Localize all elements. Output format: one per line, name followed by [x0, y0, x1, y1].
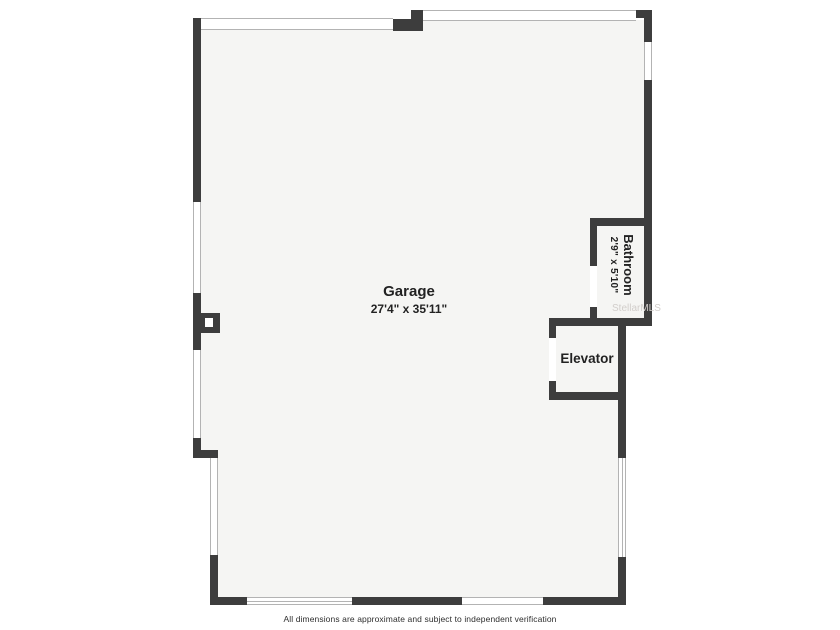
wall-bottom-3 [543, 597, 626, 605]
wall-right-upper-2 [644, 80, 652, 326]
exterior-area-right [626, 326, 840, 630]
bathroom-room-name: Bathroom [620, 215, 636, 315]
bathroom-wall-left-upper [590, 218, 597, 266]
window-left-lower [210, 458, 218, 555]
wall-left-jog [193, 450, 218, 458]
window-bottom [247, 597, 352, 605]
garage-room-dimensions: 27'4" x 35'11" [309, 302, 509, 318]
wall-right-upper-1 [644, 10, 652, 42]
support-post-core [205, 318, 213, 327]
window-right-lower [618, 458, 626, 557]
elevator-wall-bottom [549, 392, 626, 400]
elevator-wall-left-upper [549, 318, 556, 338]
window-right-upper [644, 42, 652, 80]
dimensions-disclaimer: All dimensions are approximate and subje… [0, 614, 840, 624]
door-opening-bottom [462, 597, 543, 605]
garage-room-name: Garage [309, 283, 509, 302]
bathroom-elevator-wall [549, 318, 652, 326]
window-left-2 [193, 350, 201, 438]
bathroom-door-opening [590, 266, 597, 307]
wall-right-mid-elevator [618, 318, 626, 458]
bathroom-room-dimensions: 2'9" x 5'10" [607, 215, 620, 315]
elevator-door-opening [549, 338, 556, 381]
wall-bottom-1 [210, 597, 247, 605]
floor-plan: Garage 27'4" x 35'11" Bathroom 2'9" x 5'… [0, 0, 840, 630]
wall-left-upper [193, 18, 201, 202]
window-left-1 [193, 202, 201, 293]
bathroom-label-group: Bathroom 2'9" x 5'10" [600, 215, 636, 315]
garage-door-opening-top-left [201, 18, 393, 30]
garage-door-opening-top-right [423, 10, 636, 21]
wall-bottom-2 [352, 597, 462, 605]
wall-right-lower [618, 557, 626, 605]
wall-top-step-horizontal [393, 19, 423, 31]
elevator-label-group: Elevator [556, 326, 618, 392]
exterior-area-left [0, 458, 210, 630]
garage-label-group: Garage 27'4" x 35'11" [309, 283, 509, 317]
mls-watermark: StellarMLS [612, 303, 661, 314]
elevator-room-name: Elevator [560, 351, 613, 368]
wall-top-step-vertical [411, 10, 423, 20]
